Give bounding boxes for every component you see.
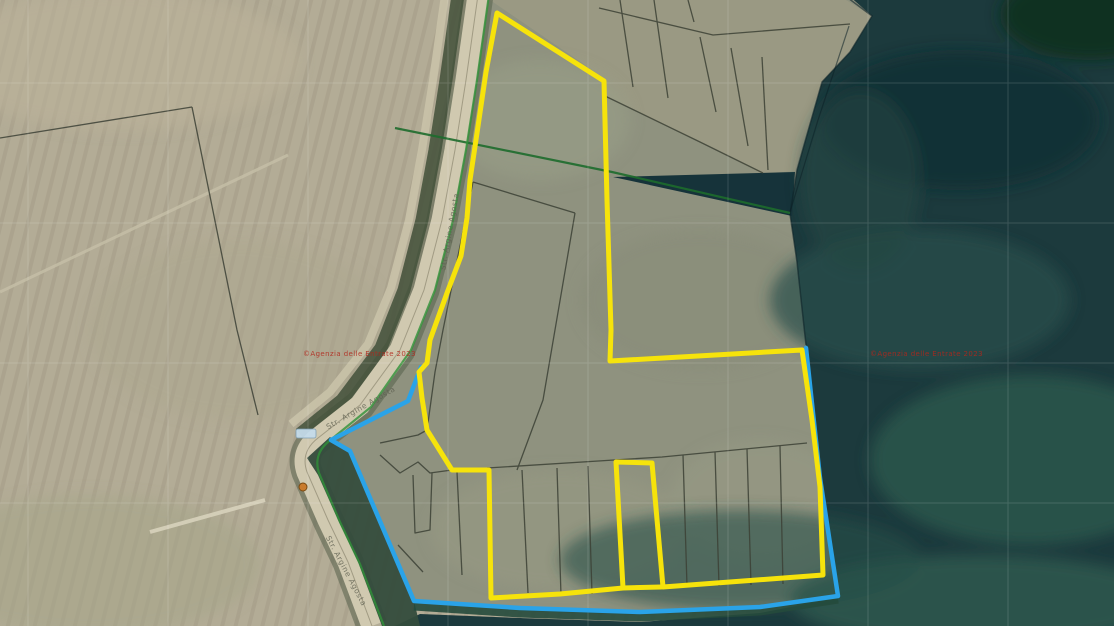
km-marker[interactable] — [299, 483, 307, 491]
copyright-watermark-left: ©Agenzia delle Entrate 2023 — [303, 350, 416, 358]
water-feature-label — [296, 429, 316, 438]
map-viewport[interactable]: ©Agenzia delle Entrate 2023 ©Agenzia del… — [0, 0, 1114, 626]
copyright-watermark-right: ©Agenzia delle Entrate 2023 — [870, 350, 983, 358]
map-canvas[interactable]: ©Agenzia delle Entrate 2023 ©Agenzia del… — [0, 0, 1114, 626]
